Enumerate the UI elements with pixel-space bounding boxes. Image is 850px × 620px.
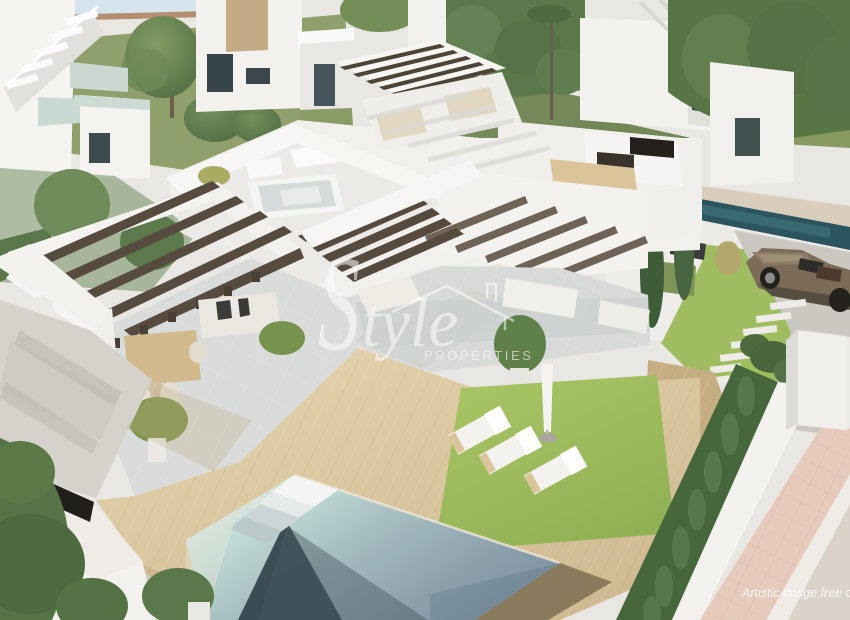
svg-text:PROPERTIES: PROPERTIES [424,348,534,363]
svg-text:S: S [318,229,360,379]
svg-text:Artistic image free of: Artistic image free of [741,586,850,600]
